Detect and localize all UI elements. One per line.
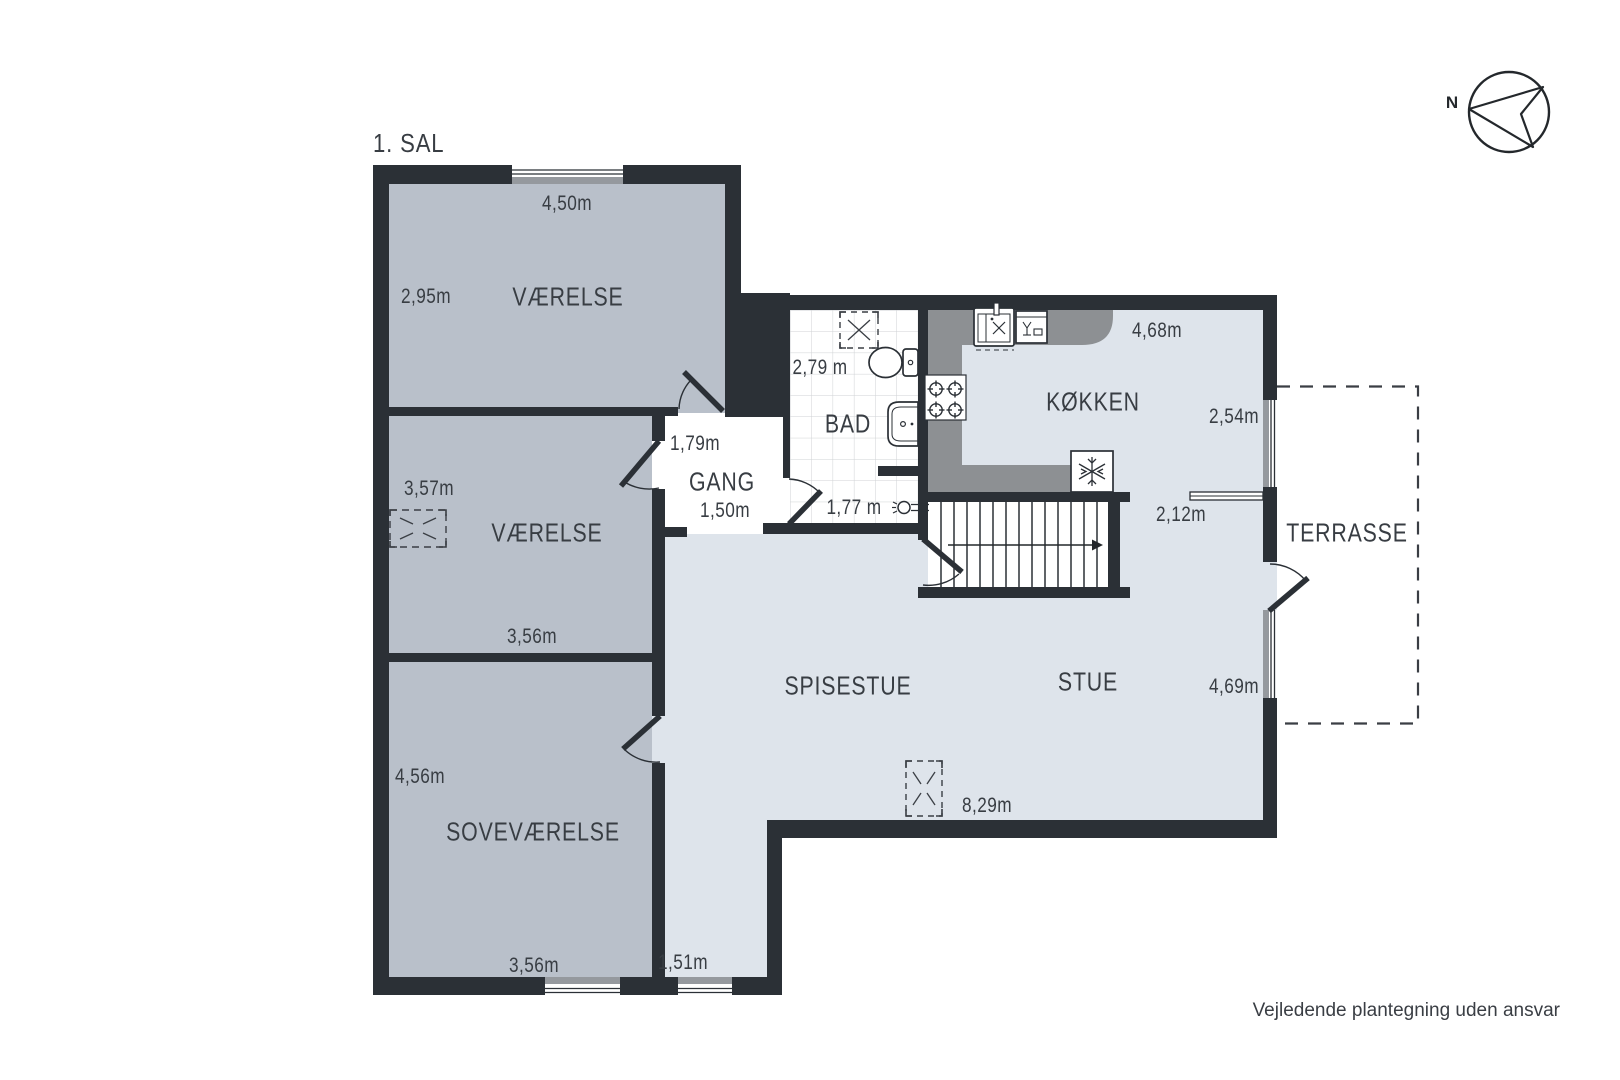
room-label-spisestue: SPISESTUE <box>784 671 911 702</box>
fridge-icon <box>1071 451 1113 492</box>
dim-koekken-ledge: 2,12m <box>1156 503 1206 527</box>
window-hall-south <box>678 977 732 995</box>
dim-spisestue-hall: 1,51m <box>658 951 708 975</box>
room-label-vaerelse-mid: VÆRELSE <box>491 518 602 549</box>
window-bedroom-south <box>545 977 620 995</box>
dim-spisestue-width: 8,29m <box>962 794 1012 818</box>
room-label-stue: STUE <box>1058 667 1118 698</box>
staircase <box>928 502 1108 587</box>
window-kitchen-east <box>1263 400 1277 487</box>
dim-bad-shower: 1,77 m <box>826 496 881 520</box>
toilet-icon <box>869 348 918 378</box>
dim-koekken-width: 4,68m <box>1132 319 1182 343</box>
dim-koekken-window: 2,54m <box>1209 405 1259 429</box>
bathroom-sink-icon <box>888 402 918 446</box>
dim-vaerelse-mid-width: 3,56m <box>507 625 557 649</box>
dim-vaerelse-mid-depth: 3,57m <box>404 477 454 501</box>
dim-sovevaerelse-width: 3,56m <box>509 954 559 978</box>
ledge-line <box>1190 492 1263 500</box>
room-label-sovevaerelse: SOVEVÆRELSE <box>446 817 620 848</box>
compass-north-label: N <box>1446 93 1458 113</box>
window-stue-east <box>1263 610 1277 698</box>
room-label-vaerelse-top: VÆRELSE <box>512 282 623 313</box>
dim-gang-width: 1,79m <box>670 432 720 456</box>
dim-vaerelse-top-depth: 2,95m <box>401 285 451 309</box>
kitchen-sink-icon <box>974 303 1014 350</box>
room-label-terrasse: TERRASSE <box>1286 518 1407 549</box>
room-label-gang: GANG <box>689 467 755 498</box>
stove-icon <box>925 375 966 420</box>
dim-stue-window: 4,69m <box>1209 675 1259 699</box>
dim-sovevaerelse-depth: 4,56m <box>395 765 445 789</box>
dim-vaerelse-top-width: 4,50m <box>542 192 592 216</box>
terrace-outline <box>1277 387 1418 724</box>
dishwasher-icon <box>1016 311 1047 343</box>
room-label-koekken: KØKKEN <box>1046 387 1140 418</box>
floor-title: 1. SAL <box>373 128 444 159</box>
floorplan: 1. SAL VÆRELSE 4,50m 2,95m VÆRELSE 3,57m… <box>0 0 1620 1080</box>
dim-bad-width: 2,79 m <box>792 356 847 380</box>
compass-icon <box>1469 72 1549 152</box>
dim-gang-depth: 1,50m <box>700 499 750 523</box>
room-label-bad: BAD <box>825 409 871 440</box>
window-top <box>512 165 623 184</box>
disclaimer-text: Vejledende plantegning uden ansvar <box>1253 1000 1560 1022</box>
